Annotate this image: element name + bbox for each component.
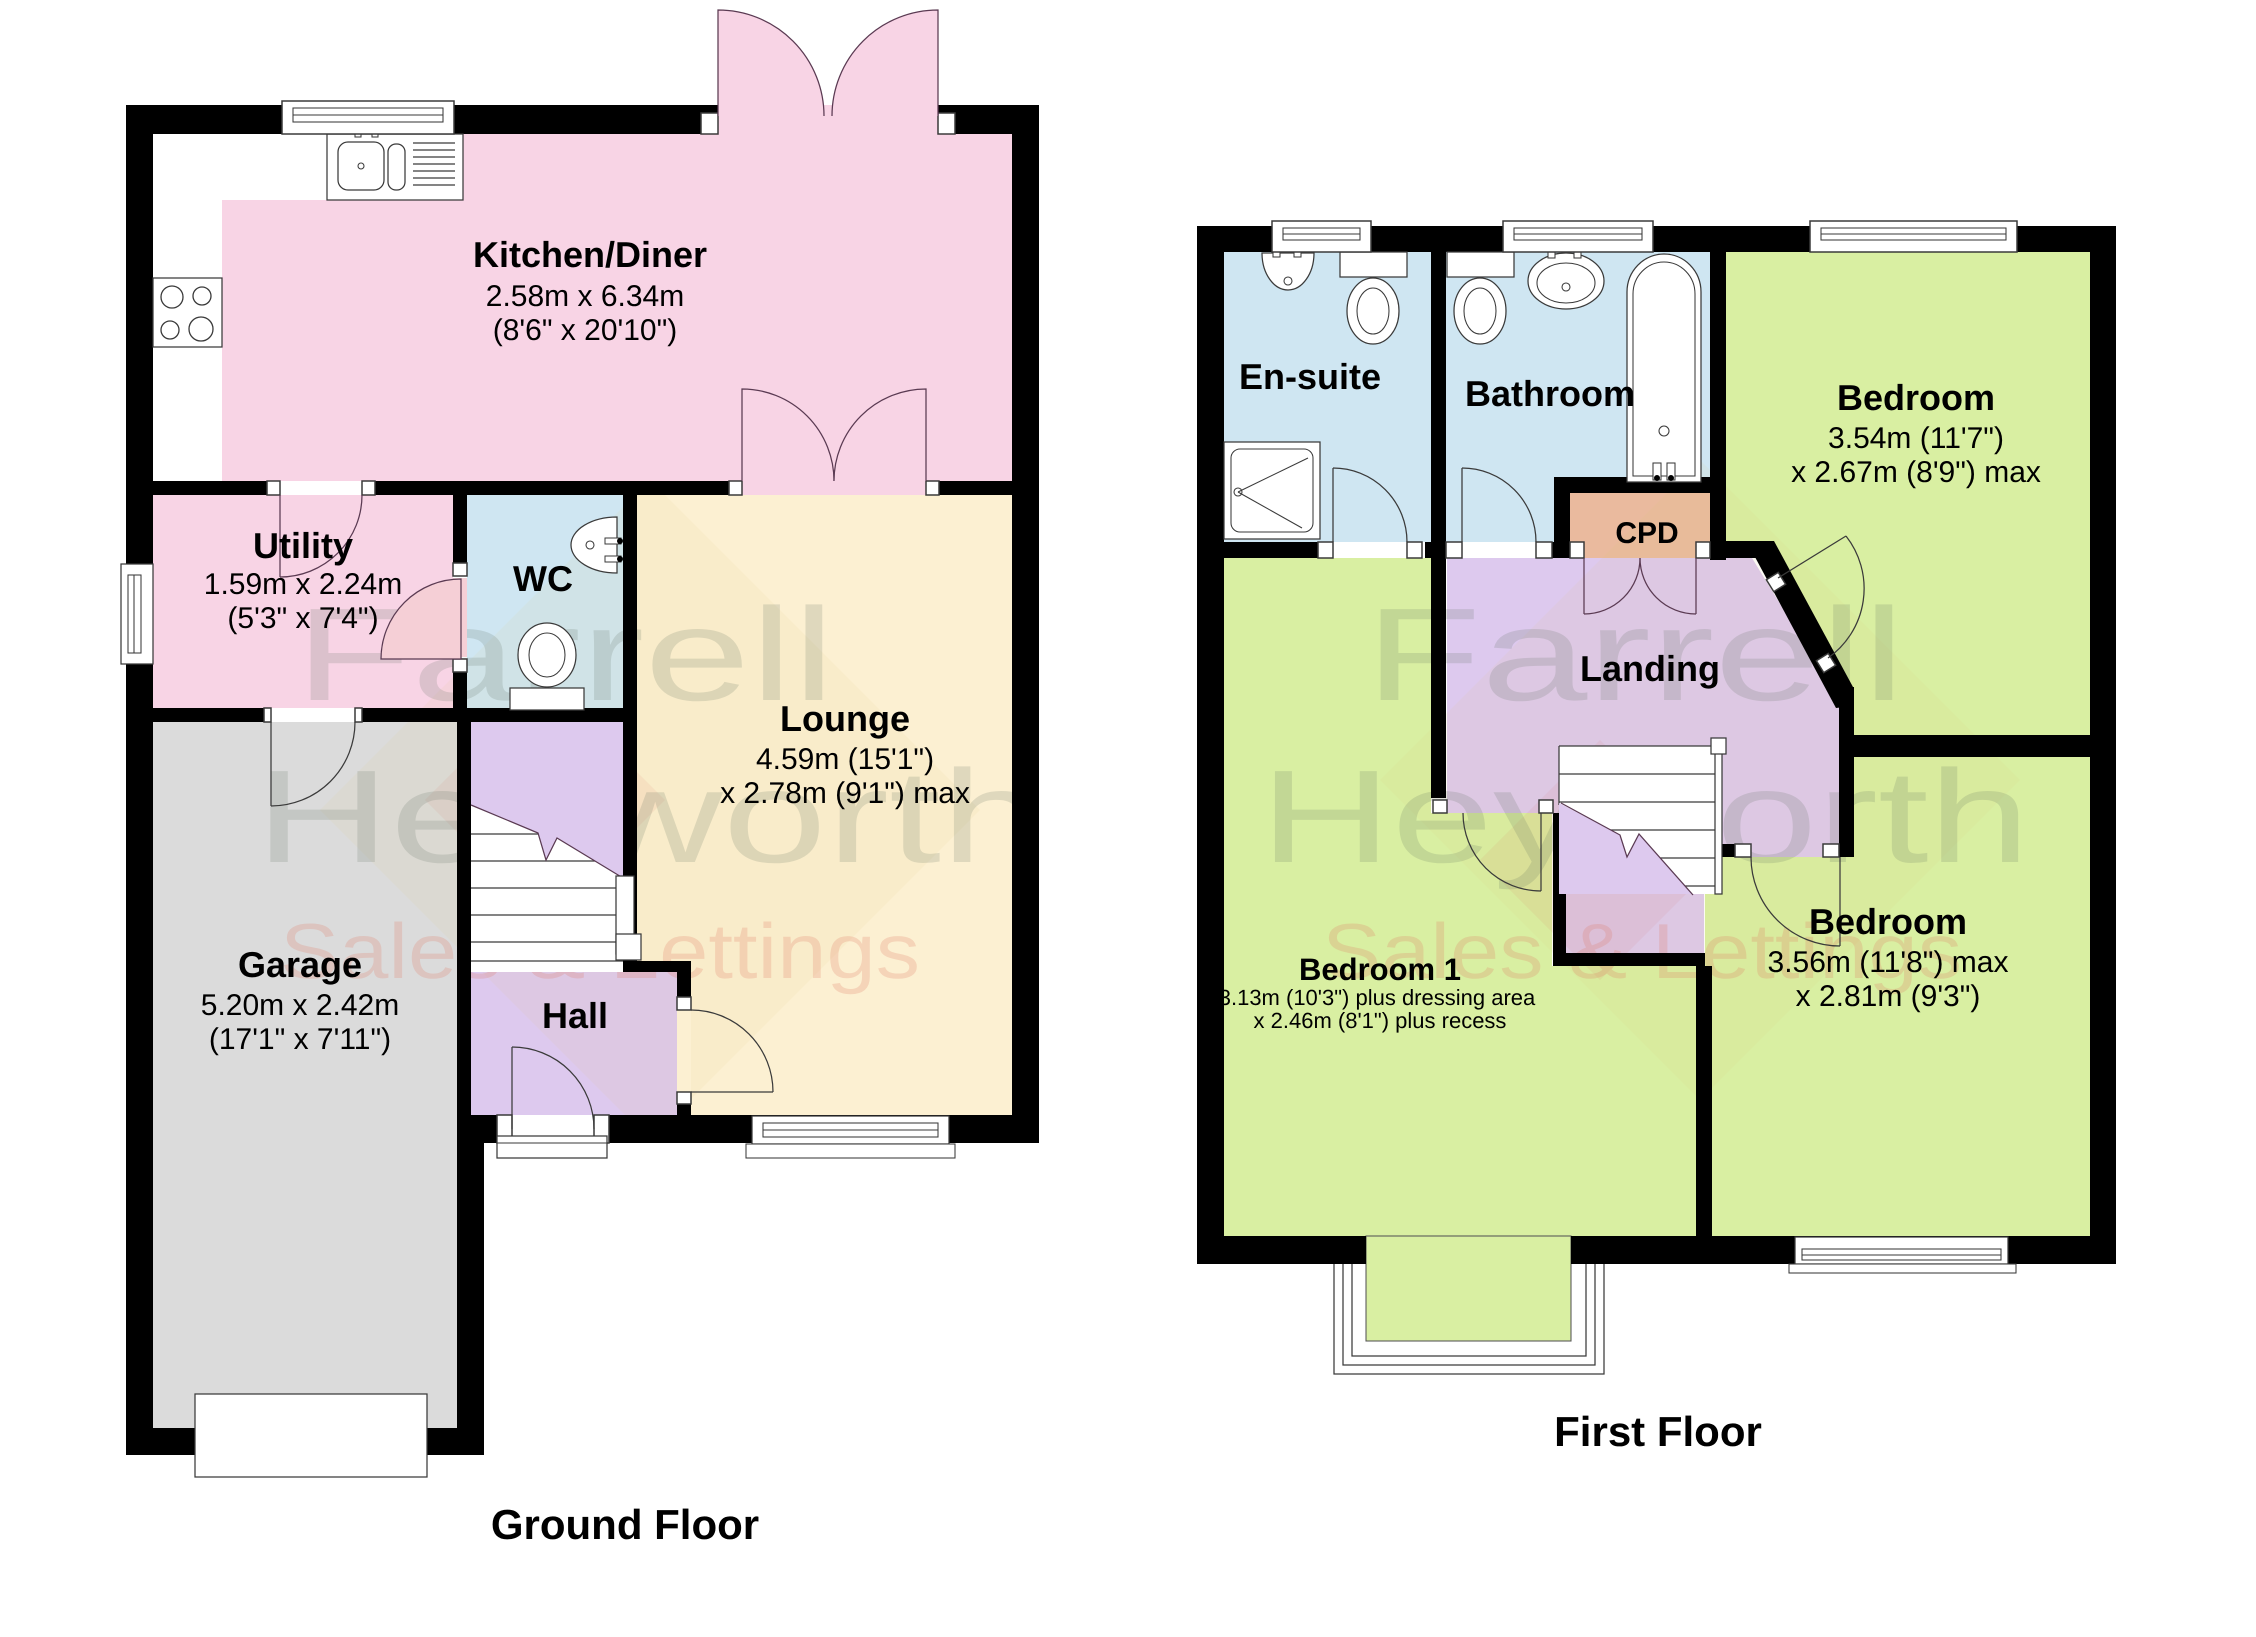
svg-text:CPD: CPD: [1615, 517, 1678, 550]
svg-text:Kitchen/Diner: Kitchen/Diner: [473, 234, 707, 275]
svg-text:Bedroom: Bedroom: [1837, 377, 1995, 418]
svg-text:Garage: Garage: [238, 944, 362, 985]
svg-text:3.13m (10'3") plus dressing ar: 3.13m (10'3") plus dressing area: [1219, 985, 1536, 1010]
svg-text:4.59m (15'1"): 4.59m (15'1"): [756, 743, 934, 776]
svg-text:(8'6" x 20'10"): (8'6" x 20'10"): [493, 314, 678, 347]
svg-text:5.20m x 2.42m: 5.20m x 2.42m: [201, 989, 399, 1022]
svg-text:3.54m (11'7"): 3.54m (11'7"): [1828, 422, 2004, 455]
svg-text:(5'3" x 7'4"): (5'3" x 7'4"): [227, 602, 378, 635]
svg-text:First Floor: First Floor: [1554, 1408, 1762, 1455]
svg-text:Hall: Hall: [542, 995, 608, 1036]
svg-text:Bedroom: Bedroom: [1809, 901, 1967, 942]
svg-text:Utility: Utility: [253, 525, 353, 566]
svg-text:Lounge: Lounge: [780, 698, 910, 739]
svg-text:Ground Floor: Ground Floor: [491, 1501, 759, 1548]
svg-text:Landing: Landing: [1580, 648, 1720, 689]
svg-text:3.56m (11'8") max: 3.56m (11'8") max: [1768, 946, 2009, 979]
svg-text:Bedroom 1: Bedroom 1: [1299, 952, 1461, 987]
svg-text:1.59m x 2.24m: 1.59m x 2.24m: [204, 568, 402, 601]
svg-text:x 2.67m (8'9") max: x 2.67m (8'9") max: [1791, 456, 2041, 489]
svg-text:Bathroom: Bathroom: [1465, 373, 1635, 414]
svg-text:(17'1" x 7'11"): (17'1" x 7'11"): [209, 1023, 391, 1056]
svg-text:x 2.46m (8'1") plus recess: x 2.46m (8'1") plus recess: [1254, 1008, 1507, 1033]
svg-text:WC: WC: [513, 558, 573, 599]
svg-text:En-suite: En-suite: [1239, 356, 1381, 397]
svg-text:x 2.78m (9'1") max: x 2.78m (9'1") max: [720, 777, 970, 810]
svg-text:x 2.81m (9'3"): x 2.81m (9'3"): [1796, 980, 1981, 1013]
svg-text:2.58m x 6.34m: 2.58m x 6.34m: [486, 280, 684, 313]
